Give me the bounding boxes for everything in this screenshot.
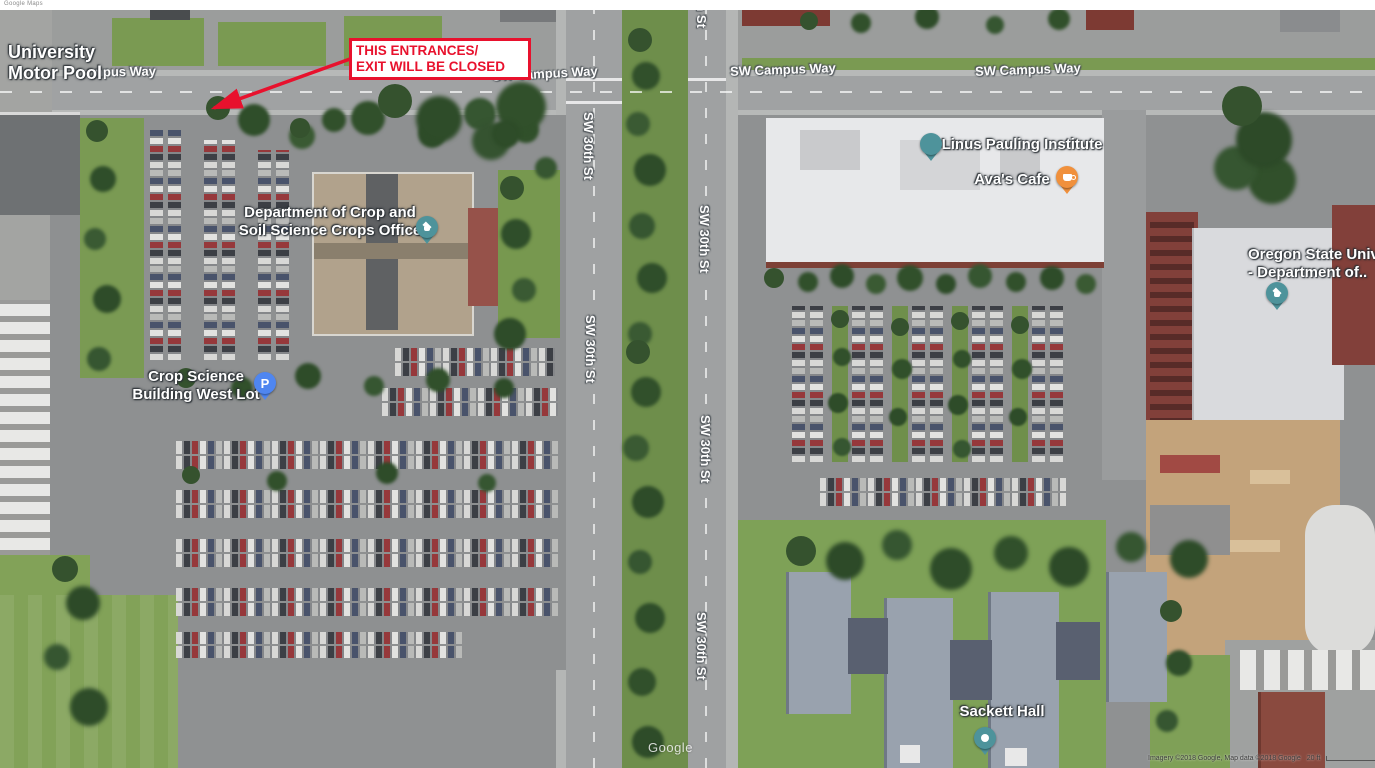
road-label-campus-way-partial: npus Way (95, 63, 156, 79)
dorm-canopy (900, 745, 920, 763)
parking-cars (176, 646, 462, 658)
rooftop (150, 10, 190, 20)
map-attribution: Imagery ©2018 Google, Map data ©2018 Goo… (1148, 755, 1375, 762)
road-access-east (1102, 110, 1146, 480)
place-label-line: Sackett Hall (959, 703, 1044, 721)
trees (626, 340, 650, 364)
building-brick-wing (1332, 205, 1375, 365)
trees (891, 318, 909, 336)
place-label-line: Department of Crop and (239, 204, 422, 222)
pin-sackett-hall[interactable] (974, 727, 996, 757)
trees (1222, 86, 1262, 126)
parking-cars (204, 140, 217, 360)
parking-cars (258, 150, 271, 360)
trees (764, 268, 784, 288)
parking-cars (820, 478, 1066, 491)
trees (378, 84, 412, 118)
scale-bar (1326, 756, 1375, 761)
building-motor-pool (0, 112, 80, 215)
building-dorm-connector (950, 640, 992, 700)
parking-cars (276, 150, 289, 360)
gravel-pile (1305, 505, 1375, 655)
parking-cars (382, 388, 558, 401)
pin-dept-crop-soil[interactable] (416, 216, 438, 246)
trees (951, 312, 969, 330)
parking-cars (176, 632, 462, 644)
road-label-30th-st-4: SW 30th St (698, 415, 713, 483)
trees (800, 12, 818, 30)
building-dorm-wing (786, 572, 851, 714)
dot-icon (981, 734, 989, 742)
place-label-avas-cafe[interactable]: Ava's Cafe (974, 171, 1050, 189)
parking-cars (176, 588, 558, 601)
parking-cars (176, 603, 558, 616)
parking-cars (176, 441, 558, 454)
rooftop (1086, 10, 1134, 30)
trees (1011, 316, 1029, 334)
place-label-line: Oregon State Univ (1248, 246, 1375, 264)
closure-annotation-line1: THIS ENTRANCES/ (356, 43, 524, 59)
place-label-line: Ava's Cafe (974, 171, 1050, 189)
closure-annotation-line2: EXIT WILL BE CLOSED (356, 59, 524, 75)
lot-divider-grass (832, 306, 848, 462)
dorm-canopy (1005, 748, 1027, 766)
pin-oregon-state[interactable] (1266, 282, 1288, 312)
median-green (622, 10, 688, 768)
building-crops-annex (468, 208, 502, 306)
construction-container (1160, 455, 1220, 473)
parking-cars (176, 539, 558, 552)
google-maps-logo-text: Google Maps (4, 1, 43, 7)
parking-cars (176, 554, 558, 567)
place-label-line: University (8, 42, 102, 63)
road-label-30th-st-2: SW 30th St (697, 205, 712, 273)
place-label-line: Soil Science Crops Office (239, 222, 422, 240)
place-label-oregon-state-dept[interactable]: Oregon State Univ- Department of.. (1248, 246, 1375, 282)
parking-p-icon: P (261, 377, 270, 390)
parking-cars (792, 306, 805, 462)
trees (628, 28, 652, 52)
building-dorm-wing (988, 592, 1059, 768)
trees (786, 536, 816, 566)
parking-cars (382, 403, 558, 416)
closure-annotation: THIS ENTRANCES/ EXIT WILL BE CLOSED (349, 38, 531, 80)
google-watermark: Google (648, 740, 693, 755)
parking-cars (990, 306, 1003, 462)
place-label-linus-pauling[interactable]: Linus Pauling Institute (942, 136, 1103, 154)
education-pin-icon (416, 216, 438, 238)
graduation-cap-icon (420, 223, 434, 232)
trees (290, 118, 310, 138)
parking-pin-icon: P (254, 372, 276, 394)
pin-avas-cafe[interactable] (1056, 166, 1078, 196)
road-label-30th-st-1: SW 30th St (581, 112, 596, 180)
parking-cars (1032, 306, 1045, 462)
crosswalk (688, 78, 726, 81)
sidewalk (726, 10, 738, 768)
parking-cars (395, 363, 555, 376)
trees (1160, 600, 1182, 622)
parking-cars (176, 505, 558, 518)
construction-materials (1250, 470, 1290, 484)
stop-bar (566, 101, 622, 104)
trees (500, 176, 524, 200)
construction-materials (1230, 540, 1280, 552)
road-label-30th-st-5: SW 30th St (694, 612, 709, 680)
lane-markings (0, 91, 1375, 93)
building-dorm-wing (1106, 572, 1167, 702)
grass-verge (80, 118, 144, 378)
building-dorm-wing (884, 598, 953, 768)
trees (182, 466, 200, 484)
parking-cars (222, 140, 235, 360)
rooftop-unit (800, 130, 860, 170)
place-label-sackett-hall[interactable]: Sackett Hall (959, 703, 1044, 721)
map-viewport[interactable]: npus WaySW Campus WaySW Campus WaySW Cam… (0, 0, 1375, 768)
page-top-strip: Google Maps (0, 0, 1375, 10)
building-dorm-connector (848, 618, 888, 674)
construction-shed (1150, 505, 1230, 555)
scale-label: 20 ft (1307, 755, 1321, 762)
place-label-line: Motor Pool (8, 63, 102, 84)
graduation-cap-icon (1270, 289, 1284, 298)
trees (86, 120, 108, 142)
building-dorm-connector (1056, 622, 1100, 680)
place-label-line: - Department of.. (1248, 264, 1375, 282)
place-label-university-motor-pool[interactable]: UniversityMotor Pool (8, 42, 102, 84)
coffee-cup-icon (1063, 174, 1072, 181)
pin-crop-science-lot[interactable]: P (254, 372, 276, 402)
trees (206, 96, 230, 120)
road-label-30th-st-3: SW 30th St (583, 315, 598, 383)
parking-cars (395, 348, 555, 361)
attribution-text: Imagery ©2018 Google, Map data ©2018 Goo… (1148, 755, 1301, 762)
place-label-line: Building West Lot (132, 386, 259, 404)
parking-cars (176, 490, 558, 503)
parking-cars (852, 306, 865, 462)
rooftop (1280, 10, 1340, 32)
parking-cars (972, 306, 985, 462)
trees (831, 310, 849, 328)
parking-cars (150, 130, 163, 360)
parking-cars (870, 306, 883, 462)
pin-linus-pauling[interactable] (920, 133, 942, 163)
parking-cars (810, 306, 823, 462)
place-label-line: Linus Pauling Institute (942, 136, 1103, 154)
education-pin-icon (1266, 282, 1288, 304)
parking-cars (930, 306, 943, 462)
parking-cars (1050, 306, 1063, 462)
dot-pin-icon (974, 727, 996, 749)
trees (52, 556, 78, 582)
parking-cars (912, 306, 925, 462)
rooftop (500, 10, 560, 22)
cafe-pin-icon (1056, 166, 1078, 188)
place-label-crop-science-west-lot[interactable]: Crop ScienceBuilding West Lot (132, 368, 259, 404)
plain-pin-icon (920, 133, 942, 155)
parking-cars (176, 456, 558, 469)
place-label-dept-crop-soil[interactable]: Department of Crop andSoil Science Crops… (239, 204, 422, 240)
trailer-row (1240, 650, 1375, 690)
building-crops-ridge (314, 243, 468, 259)
field-mow-stripes (0, 595, 178, 768)
place-label-line: Crop Science (132, 368, 259, 386)
parking-cars (168, 130, 181, 360)
grass-patch (112, 18, 204, 66)
parking-cars (820, 493, 1066, 506)
grass-patch (218, 22, 326, 66)
